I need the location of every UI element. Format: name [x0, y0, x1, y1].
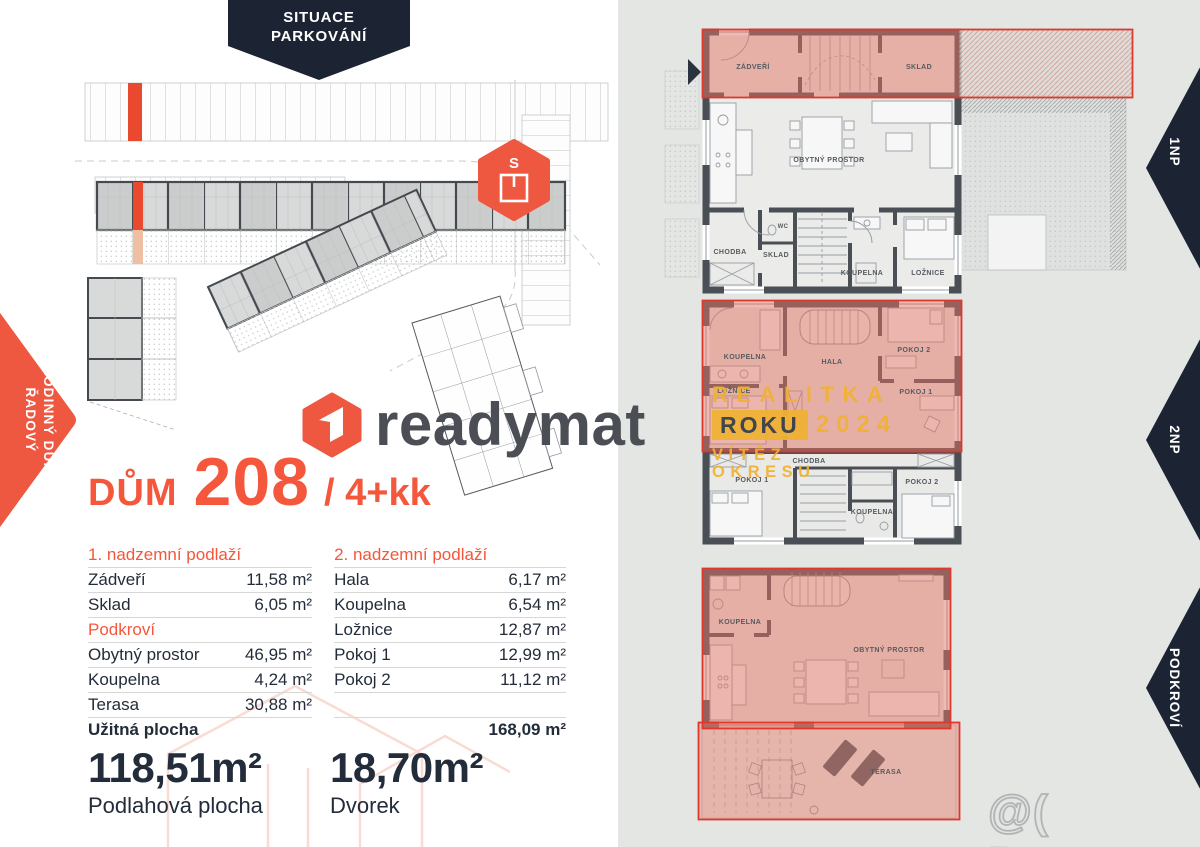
table-row: Zádveří 11,58 m²: [88, 567, 312, 592]
area-table-col2: 2. nadzemní podlaží Hala 6,17 m² Koupeln…: [334, 543, 566, 742]
floor-plan-1np: ZÁDVEŘÍ SKLAD OBYTNÝ PROSTOR CHODBA SKLA…: [664, 25, 1144, 295]
title-layout: / 4+kk: [324, 472, 431, 515]
table-subheader: Podkroví: [88, 617, 312, 642]
badge-line1: ŘADOVÝ: [23, 388, 38, 453]
room-label-loznice: LOŽNICE: [911, 268, 945, 277]
stat-value: 18,70m²: [330, 746, 572, 790]
room-label-terasa: TERASA: [870, 769, 901, 776]
tab-1np-label: 1NP: [1167, 137, 1182, 166]
house-title: DŮM 208 / 4+kk: [88, 443, 431, 521]
room-label-pokoj2-neighbor: POKOJ 2: [905, 479, 938, 486]
table-row: Hala 6,17 m²: [334, 567, 566, 592]
col1-header: 1. nadzemní podlaží: [88, 543, 312, 567]
table-row: Pokoj 2 11,12 m²: [334, 667, 566, 692]
room-label-koupelna-2np: KOUPELNA: [724, 354, 766, 361]
room-label-sklad: SKLAD: [763, 252, 789, 259]
area-table-col1: 1. nadzemní podlaží Zádveří 11,58 m² Skl…: [88, 543, 312, 742]
situace-parkovani-banner: SITUACE PARKOVÁNÍ: [228, 0, 410, 80]
badge-line2: RODINNÝ DŮM: [41, 365, 57, 475]
stat-label: Dvorek: [330, 793, 572, 819]
title-prefix: DŮM: [88, 472, 178, 515]
area-stats: 118,51m² Podlahová plocha 18,70m² Dvorek: [88, 746, 572, 819]
room-label-koupelna-podkrovi: KOUPELNA: [719, 619, 761, 626]
room-label-hala: HALA: [821, 359, 842, 366]
room-label-koupelna-neighbor: KOUPELNA: [851, 509, 893, 516]
table-row: Ložnice 12,87 m²: [334, 617, 566, 642]
highlighted-house-garden: [133, 230, 143, 264]
table-spacer-row: [334, 692, 566, 717]
room-label-sklad-top: SKLAD: [906, 64, 932, 71]
tab-1np: 1NP: [1146, 28, 1200, 308]
table-row: Terasa 30,88 m²: [88, 692, 312, 717]
table-row: Pokoj 1 12,99 m²: [334, 642, 566, 667]
room-label-koupelna: KOUPELNA: [841, 270, 883, 277]
col2-header: 2. nadzemní podlaží: [334, 543, 566, 567]
room-label-zadveri: ZÁDVEŘÍ: [736, 62, 770, 71]
room-label-pokoj1: POKOJ 1: [899, 389, 932, 396]
tab-2np-label: 2NP: [1167, 425, 1182, 454]
stat-label: Podlahová plocha: [88, 793, 330, 819]
table-total-value-row: 168,09 m²: [334, 717, 566, 742]
award-line3: VÍTĚZ OKRESU: [712, 447, 896, 480]
north-compass: S: [478, 138, 550, 222]
table-total-label-row: Užitná plocha: [88, 717, 312, 742]
tab-2np: 2NP: [1146, 300, 1200, 580]
table-row: Obytný prostor 46,95 m²: [88, 642, 312, 667]
award-badge: REALITKA ROKU 2024 VÍTĚZ OKRESU: [712, 384, 896, 480]
room-label-wc: WC: [778, 224, 789, 230]
stat-value: 118,51m²: [88, 746, 330, 790]
room-label-chodba: CHODBA: [713, 249, 746, 256]
room-label-obytny-podkrovi: OBYTNÝ PROSTOR: [853, 645, 924, 654]
table-row: Koupelna 6,54 m²: [334, 592, 566, 617]
floor-tabs: 1NP 2NP PODKROVÍ: [1100, 0, 1200, 847]
compass-letter: S: [509, 155, 519, 172]
bazos-watermark: @( Bazos.cz: [988, 786, 1200, 847]
highlight-terasa: [699, 723, 960, 820]
stat-floor-area: 118,51m² Podlahová plocha: [88, 746, 330, 819]
table-row: Sklad 6,05 m²: [88, 592, 312, 617]
banner-line1: SITUACE: [283, 9, 354, 26]
title-number: 208: [194, 443, 310, 521]
highlighted-house-unit: [133, 182, 143, 230]
award-roku: ROKU: [712, 410, 808, 440]
table-row: Koupelna 4,24 m²: [88, 667, 312, 692]
tab-podkrovi-label: PODKROVÍ: [1167, 648, 1182, 728]
award-year: 2024: [816, 413, 897, 437]
banner-line2: PARKOVÁNÍ: [271, 28, 367, 45]
highlighted-parking-stall: [128, 83, 142, 141]
site-house-column: [88, 278, 176, 430]
area-table: 1. nadzemní podlaží Zádveří 11,58 m² Skl…: [88, 543, 566, 742]
flyer-page: SITUACE PARKOVÁNÍ ŘADOVÝ RODINNÝ DŮM S r…: [0, 0, 1200, 847]
award-line1: REALITKA: [712, 384, 896, 406]
stat-yard-area: 18,70m² Dvorek: [330, 746, 572, 819]
garden-terrace: [988, 215, 1046, 270]
room-label-pokoj2: POKOJ 2: [897, 347, 930, 354]
room-label-obytny-prostor: OBYTNÝ PROSTOR: [793, 155, 864, 164]
